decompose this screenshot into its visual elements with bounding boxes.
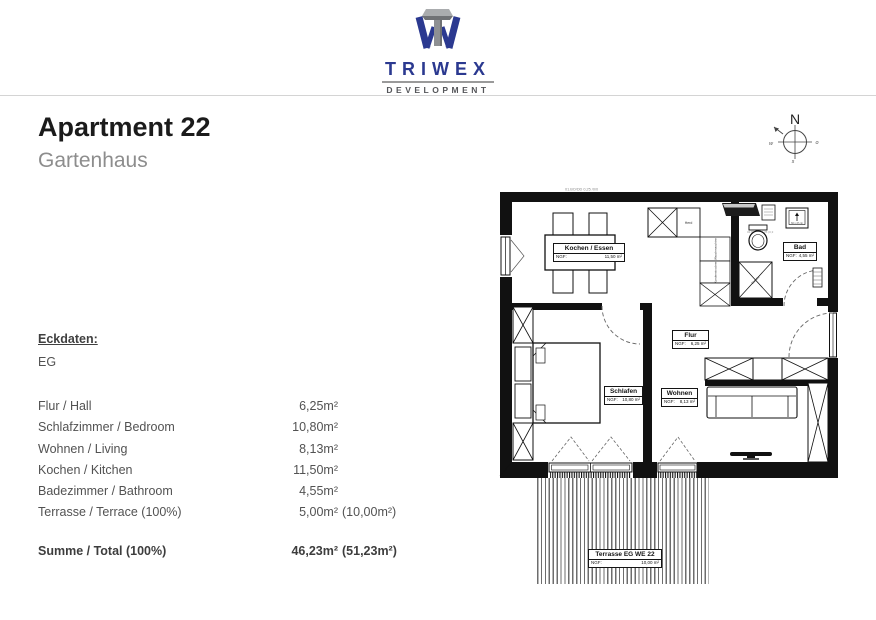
room-label-bad: Bad NGF:4,55 m² bbox=[783, 242, 817, 261]
chair bbox=[589, 213, 607, 236]
room-name: Flur / Hall bbox=[38, 399, 276, 420]
chair bbox=[589, 270, 607, 293]
bed bbox=[533, 343, 600, 423]
total-label: Summe / Total (100%) bbox=[38, 544, 276, 558]
kitchen-counter: Herd bbox=[648, 208, 700, 237]
compass-south-label: s bbox=[792, 159, 795, 165]
entrance-door bbox=[789, 313, 837, 357]
pillow bbox=[536, 348, 545, 363]
room-area: 10,80m² bbox=[276, 420, 338, 441]
toilet bbox=[749, 225, 767, 250]
window-left bbox=[501, 237, 524, 275]
room-area: 4,55m² bbox=[276, 484, 338, 505]
logo-divider bbox=[382, 81, 494, 83]
chair bbox=[553, 270, 573, 293]
sofa bbox=[707, 387, 797, 418]
door-swing-arc bbox=[789, 313, 833, 357]
brand-name: TRIWEX bbox=[382, 59, 494, 80]
terrace-door-living bbox=[658, 437, 697, 478]
vent-box bbox=[762, 205, 775, 220]
dimension-note-top: 01.BO/DD 0,25 /0/0 bbox=[565, 188, 598, 192]
table-row: Wohnen / Living 8,13m² bbox=[38, 442, 406, 463]
room-name: Schlafzimmer / Bedroom bbox=[38, 420, 276, 441]
towel-radiator bbox=[813, 268, 822, 287]
terrace-door-bedroom bbox=[549, 437, 632, 478]
washbasin: 60 x 47 cm bbox=[786, 208, 808, 228]
room-name: Badezimmer / Bathroom bbox=[38, 484, 276, 505]
pillow bbox=[536, 405, 545, 420]
room-name: Terrasse / Terrace (100%) bbox=[38, 505, 276, 526]
room-area-extra bbox=[338, 463, 406, 484]
dryer-label: Kondenstrockner bbox=[714, 261, 718, 284]
nightstand bbox=[515, 347, 531, 381]
compass-rose: N w o s bbox=[757, 104, 835, 182]
triwex-logo: TRIWEX DEVELOPMENT bbox=[0, 8, 876, 98]
table-row: Schlafzimmer / Bedroom 10,80m² bbox=[38, 420, 406, 441]
room-area-extra bbox=[338, 420, 406, 441]
triwex-monogram-icon bbox=[413, 8, 463, 52]
room-name: Kochen / Kitchen bbox=[38, 463, 276, 484]
hall-wardrobes bbox=[705, 358, 828, 380]
living-furniture bbox=[707, 383, 828, 462]
room-name: Wohnen / Living bbox=[38, 442, 276, 463]
compass-west-label: w bbox=[769, 141, 774, 147]
table-row: Kochen / Kitchen 11,50m² bbox=[38, 463, 406, 484]
chair bbox=[553, 213, 573, 236]
table-row: Flur / Hall 6,25m² bbox=[38, 399, 406, 420]
room-area: 8,13m² bbox=[276, 442, 338, 463]
room-label-kochen: Kochen / Essen NGF:11,50 m² bbox=[553, 243, 625, 262]
room-label-flur: Flur NGF:6,25 m² bbox=[672, 330, 709, 349]
page-title: Apartment 22 bbox=[38, 112, 211, 143]
room-area: 11,50m² bbox=[276, 463, 338, 484]
title-block: Apartment 22 Gartenhaus bbox=[38, 112, 211, 172]
room-label-wohnen: Wohnen NGF:8,13 m² bbox=[661, 388, 698, 407]
brochure-page: TRIWEX DEVELOPMENT Apartment 22 Gartenha… bbox=[0, 0, 876, 620]
total-value: 46,23m² bbox=[276, 544, 338, 558]
tall-wardrobe bbox=[808, 383, 828, 462]
bedroom-furniture bbox=[513, 307, 600, 460]
eckdaten-heading: Eckdaten: bbox=[38, 332, 406, 346]
total-row: Summe / Total (100%) 46,23m² (51,23m²) bbox=[38, 544, 406, 558]
wardrobe bbox=[513, 423, 533, 460]
room-label-schlafen: Schlafen NGF:10,80 m² bbox=[604, 386, 643, 405]
bedroom-door-swing-arc bbox=[602, 306, 640, 344]
nightstand bbox=[515, 384, 531, 418]
room-area-extra bbox=[338, 484, 406, 505]
room-area-extra bbox=[338, 399, 406, 420]
brand-tagline: DEVELOPMENT bbox=[382, 85, 494, 95]
compass-east-label2: o bbox=[815, 140, 818, 146]
basin-size-label: 60 x 47 cm bbox=[791, 222, 803, 225]
room-area-extra: (10,00m²) bbox=[338, 505, 406, 526]
shower: Dusche bbox=[739, 262, 772, 298]
washing-machine-label: Waschmaschine bbox=[714, 238, 718, 260]
room-area: 6,25m² bbox=[276, 399, 338, 420]
eckdaten-section: Eckdaten: EG Flur / Hall 6,25m² Schlafzi… bbox=[38, 332, 406, 558]
total-extra: (51,23m²) bbox=[338, 544, 406, 558]
floor-label: EG bbox=[38, 355, 406, 369]
header-divider bbox=[0, 95, 876, 96]
compass-north-label: N bbox=[790, 111, 800, 127]
tv bbox=[730, 452, 772, 459]
room-label-terrasse: Terrasse EG WE 22 NGF:10,00 m² bbox=[588, 549, 662, 568]
room-area: 5,00m² bbox=[276, 505, 338, 526]
table-row: Badezimmer / Bathroom 4,55m² bbox=[38, 484, 406, 505]
wardrobe bbox=[513, 307, 533, 343]
utility-closet: Waschmaschine Kondenstrockner bbox=[700, 237, 730, 306]
area-table: Flur / Hall 6,25m² Schlafzimmer / Bedroo… bbox=[38, 399, 406, 527]
floor-plan: 01.BO/DD 0,25 /0/0 bbox=[497, 186, 842, 602]
room-area-extra bbox=[338, 442, 406, 463]
table-row: Terrasse / Terrace (100%) 5,00m² (10,00m… bbox=[38, 505, 406, 526]
herd-label: Herd bbox=[685, 221, 693, 225]
page-subtitle: Gartenhaus bbox=[38, 149, 211, 172]
